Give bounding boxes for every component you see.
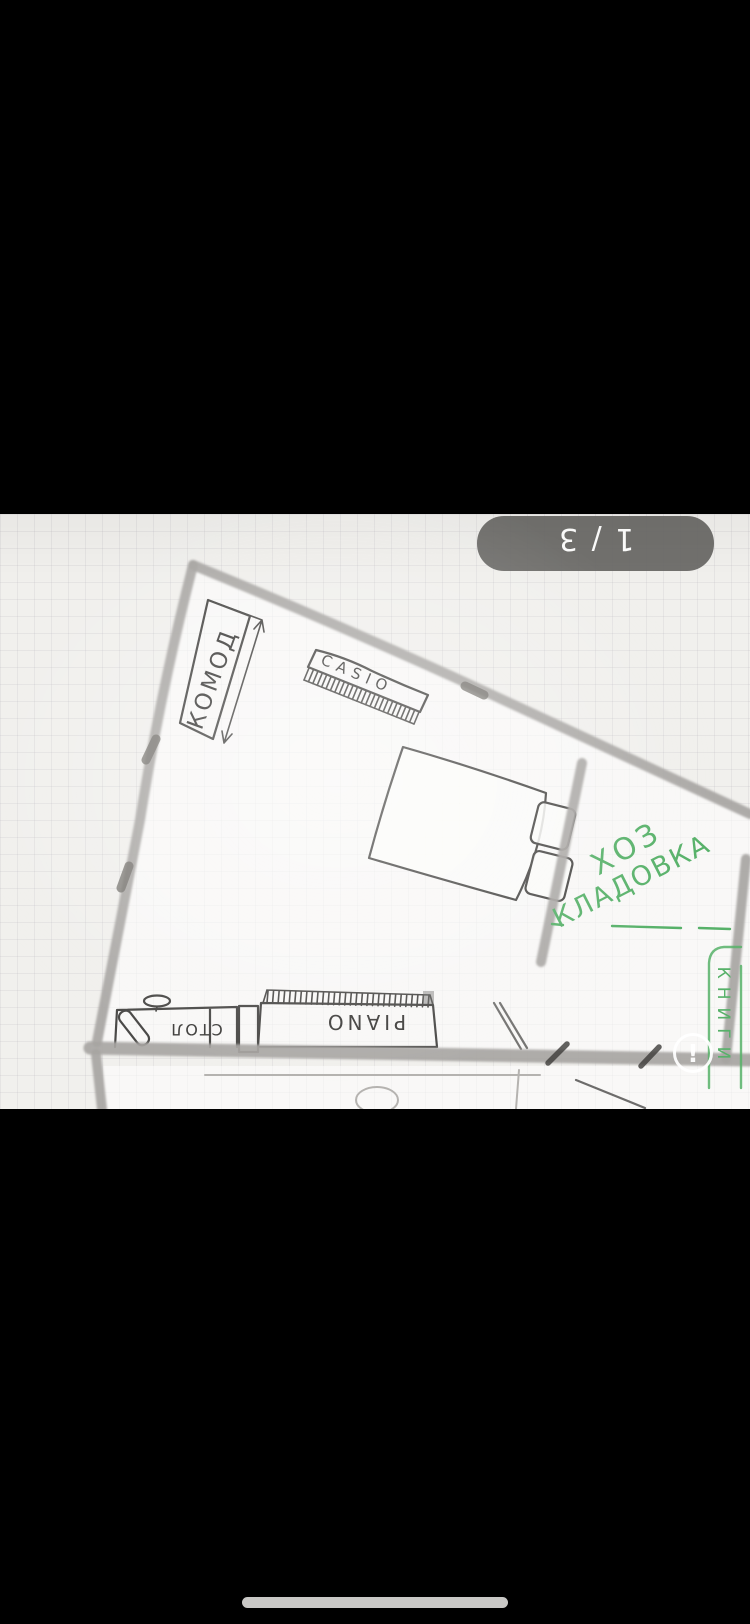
books-label: КНИГИ xyxy=(713,967,733,1068)
floor-plan-sketch: КОМОД CASIO PIANO xyxy=(0,514,750,1109)
photo-counter-label: 1 / 3 xyxy=(557,521,634,566)
exclamation-glyph: ! xyxy=(687,1041,698,1066)
home-indicator[interactable] xyxy=(242,1597,508,1608)
floor-plan-photo[interactable]: КОМОД CASIO PIANO xyxy=(0,514,750,1109)
desk-label: СТОЛ xyxy=(169,1020,223,1039)
phone-screen: КОМОД CASIO PIANO xyxy=(0,0,750,1624)
piano-keys-dark-end xyxy=(423,991,434,1004)
wall-lower-left xyxy=(96,1054,102,1109)
photo-counter-badge: 1 / 3 xyxy=(477,516,714,571)
piano-label: PIANO xyxy=(324,1010,406,1034)
alert-icon: ! xyxy=(673,1033,713,1073)
